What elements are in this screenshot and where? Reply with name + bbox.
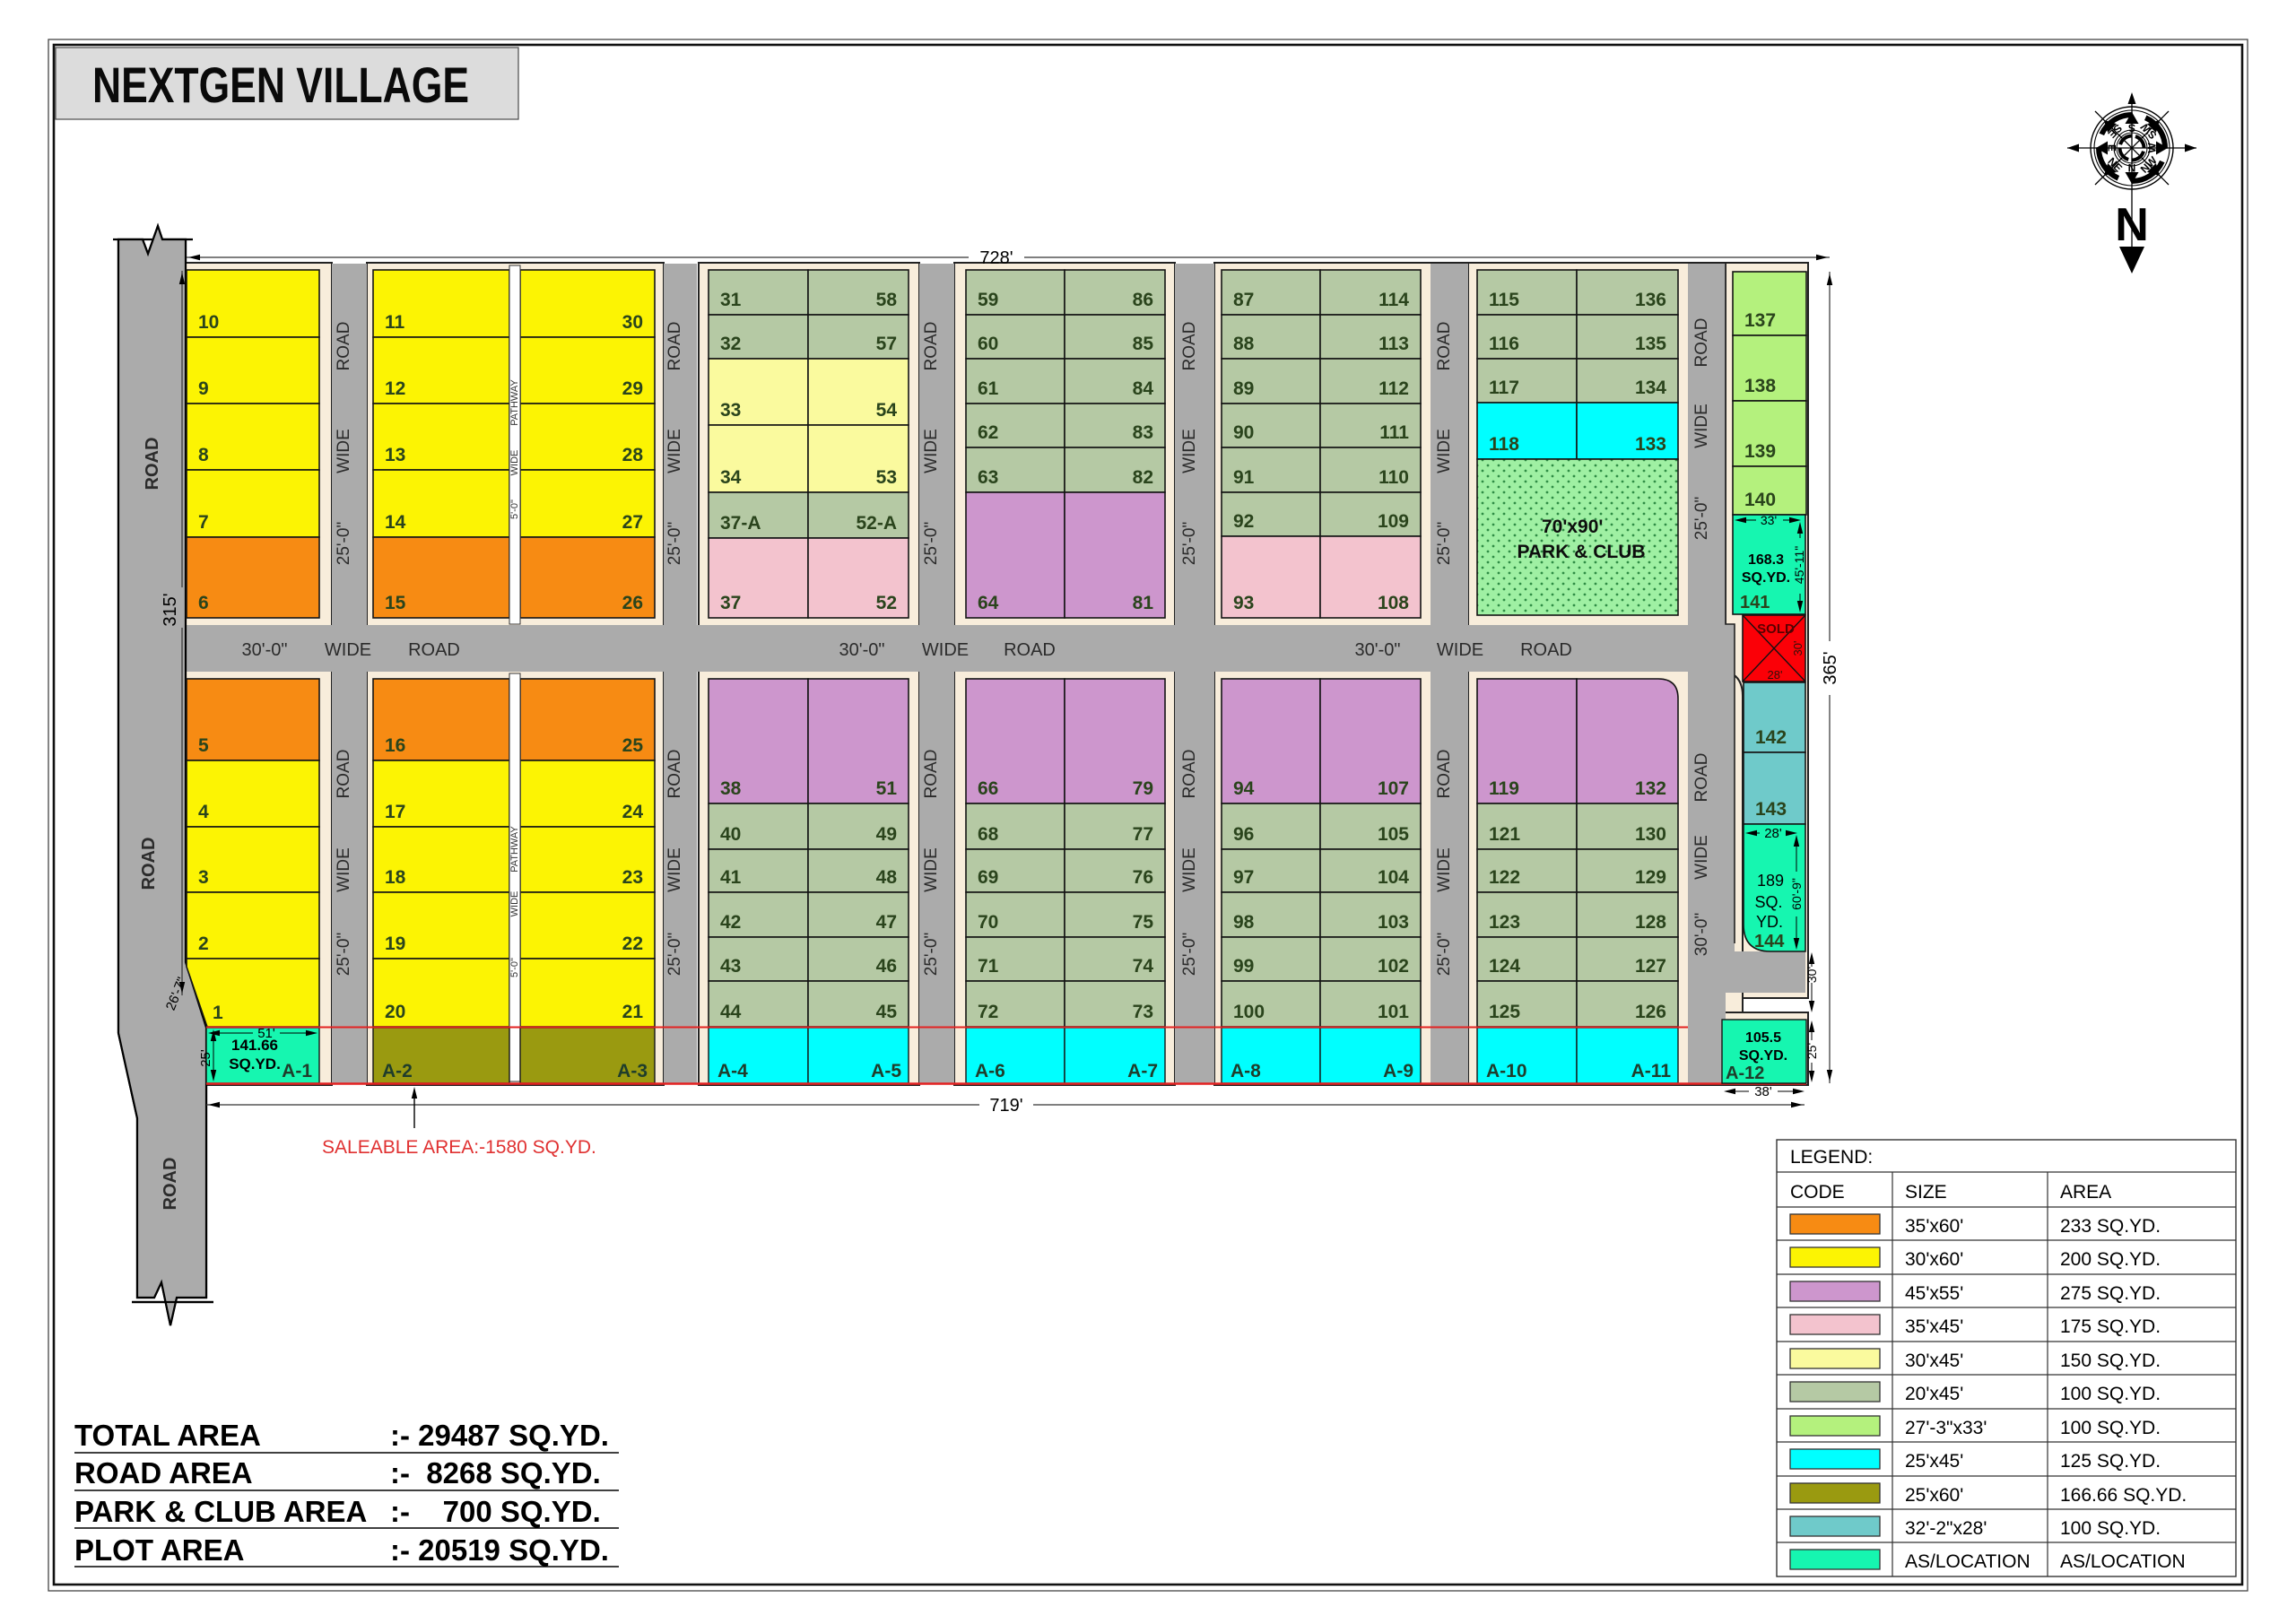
svg-text:ROAD: ROAD <box>1435 322 1454 371</box>
svg-text:SIZE: SIZE <box>1905 1182 1947 1203</box>
svg-text:33': 33' <box>1761 513 1777 527</box>
svg-text:137: 137 <box>1744 310 1776 331</box>
svg-text:17: 17 <box>385 802 405 822</box>
svg-text:NEXTGEN VILLAGE: NEXTGEN VILLAGE <box>92 56 469 113</box>
svg-text:25'-0": 25'-0" <box>1435 933 1454 976</box>
svg-text:25'x60': 25'x60' <box>1905 1485 1963 1506</box>
svg-text:365': 365' <box>1821 651 1840 684</box>
svg-text:122: 122 <box>1489 867 1520 888</box>
svg-text:A-12: A-12 <box>1726 1064 1764 1083</box>
svg-text:W: W <box>2146 143 2159 153</box>
svg-text:44: 44 <box>720 1002 742 1022</box>
svg-text:102: 102 <box>1378 956 1409 977</box>
svg-text:ROAD: ROAD <box>1692 318 1711 368</box>
svg-text:111: 111 <box>1379 422 1409 443</box>
svg-text:119: 119 <box>1489 778 1519 799</box>
svg-text:118: 118 <box>1489 434 1519 455</box>
svg-text:SALEABLE AREA:-1580 SQ.YD.: SALEABLE AREA:-1580 SQ.YD. <box>322 1137 596 1158</box>
svg-text:25'-0": 25'-0" <box>665 522 684 565</box>
svg-text:100 SQ.YD.: 100 SQ.YD. <box>2060 1384 2161 1404</box>
svg-text:A-10: A-10 <box>1486 1061 1527 1081</box>
svg-text:138: 138 <box>1744 376 1776 396</box>
svg-text:144: 144 <box>1754 932 1785 951</box>
svg-text:166.66 SQ.YD.: 166.66 SQ.YD. <box>2060 1485 2187 1506</box>
svg-text:A-8: A-8 <box>1231 1061 1261 1081</box>
svg-text:27'-3"x33': 27'-3"x33' <box>1905 1418 1987 1438</box>
svg-text:51': 51' <box>257 1026 275 1041</box>
svg-text:115: 115 <box>1489 290 1519 310</box>
svg-text:110: 110 <box>1378 467 1409 488</box>
svg-text:2: 2 <box>198 934 209 954</box>
svg-text:14: 14 <box>385 512 406 533</box>
svg-text:ROAD: ROAD <box>408 640 460 660</box>
svg-text:A-6: A-6 <box>975 1061 1005 1081</box>
svg-text:ROAD: ROAD <box>665 750 684 799</box>
svg-text:41: 41 <box>720 867 742 888</box>
svg-text:WIDE: WIDE <box>1692 835 1711 880</box>
svg-text:84: 84 <box>1133 378 1154 399</box>
svg-text:74: 74 <box>1133 956 1154 977</box>
svg-text:124: 124 <box>1489 956 1520 977</box>
svg-text:WIDE: WIDE <box>665 847 684 892</box>
svg-text:ROAD: ROAD <box>1520 640 1572 660</box>
svg-text:WIDE: WIDE <box>1692 404 1711 448</box>
svg-text:AS/LOCATION: AS/LOCATION <box>1905 1551 2031 1572</box>
svg-text:81: 81 <box>1133 593 1154 613</box>
svg-text:100 SQ.YD.: 100 SQ.YD. <box>2060 1518 2161 1539</box>
svg-text:25'-0": 25'-0" <box>335 933 353 976</box>
svg-text:27: 27 <box>622 512 643 533</box>
svg-text:76: 76 <box>1133 867 1153 888</box>
svg-text:35'x45': 35'x45' <box>1905 1316 1963 1337</box>
svg-text:ROAD: ROAD <box>1180 322 1199 371</box>
svg-text:WIDE: WIDE <box>922 847 941 892</box>
svg-text:82: 82 <box>1133 467 1153 488</box>
svg-text:25'-0": 25'-0" <box>1180 522 1199 565</box>
svg-text:25': 25' <box>198 1049 213 1067</box>
svg-text:121: 121 <box>1489 824 1520 845</box>
svg-text:WIDE: WIDE <box>1180 847 1199 892</box>
svg-text:25'-0": 25'-0" <box>1180 933 1199 976</box>
svg-text:A-3: A-3 <box>617 1061 648 1081</box>
svg-text:16: 16 <box>385 735 405 756</box>
svg-text:ROAD: ROAD <box>335 750 353 799</box>
svg-text:WIDE: WIDE <box>922 429 941 473</box>
svg-text:PLOT AREA: PLOT AREA <box>74 1533 244 1567</box>
svg-text:85: 85 <box>1133 334 1154 354</box>
svg-text:46: 46 <box>876 956 897 977</box>
svg-text:SQ.YD.: SQ.YD. <box>1742 570 1790 586</box>
svg-text:90: 90 <box>1233 422 1254 443</box>
svg-text:200 SQ.YD.: 200 SQ.YD. <box>2060 1249 2161 1270</box>
svg-text:25'x45': 25'x45' <box>1905 1451 1963 1472</box>
svg-text:WIDE: WIDE <box>335 429 353 473</box>
svg-text:WIDE: WIDE <box>325 640 371 660</box>
svg-text:275 SQ.YD.: 275 SQ.YD. <box>2060 1283 2161 1304</box>
svg-text:N: N <box>2128 162 2136 175</box>
svg-text:30: 30 <box>622 312 643 333</box>
svg-text:112: 112 <box>1378 378 1409 399</box>
svg-text:SQ.YD.: SQ.YD. <box>1739 1048 1787 1064</box>
svg-text:N: N <box>2115 199 2149 251</box>
svg-text:25'-0": 25'-0" <box>665 933 684 976</box>
svg-text:CODE: CODE <box>1790 1182 1845 1203</box>
svg-text:66: 66 <box>978 778 998 799</box>
svg-text:72: 72 <box>978 1002 998 1022</box>
svg-text:28': 28' <box>1764 826 1782 841</box>
svg-text:38: 38 <box>720 778 742 799</box>
svg-text:128: 128 <box>1635 912 1666 933</box>
svg-text:S: S <box>2128 122 2135 135</box>
svg-text:37-A: 37-A <box>720 513 761 534</box>
svg-text:30': 30' <box>1791 641 1805 656</box>
svg-text:30': 30' <box>1805 967 1819 983</box>
svg-text:64: 64 <box>978 593 999 613</box>
svg-text:10: 10 <box>198 312 219 333</box>
svg-text:LEGEND:: LEGEND: <box>1790 1147 1873 1168</box>
svg-text:60'-9": 60'-9" <box>1789 878 1804 910</box>
svg-text:WIDE: WIDE <box>1437 640 1483 660</box>
svg-text:A-4: A-4 <box>717 1061 748 1081</box>
svg-text:25'-0": 25'-0" <box>922 933 941 976</box>
svg-text:233 SQ.YD.: 233 SQ.YD. <box>2060 1216 2161 1237</box>
svg-text:13: 13 <box>385 445 405 465</box>
svg-text:99: 99 <box>1233 956 1254 977</box>
svg-text:8: 8 <box>198 445 209 465</box>
svg-text:45'-11": 45'-11" <box>1792 546 1806 584</box>
svg-text:30'-0": 30'-0" <box>1692 913 1711 956</box>
svg-text:142: 142 <box>1755 727 1787 748</box>
svg-text:189: 189 <box>1757 872 1784 890</box>
svg-text:A-9: A-9 <box>1383 1061 1413 1081</box>
svg-text:1: 1 <box>213 1003 223 1023</box>
svg-text:86: 86 <box>1133 290 1153 310</box>
svg-text:94: 94 <box>1233 778 1255 799</box>
svg-text:WIDE: WIDE <box>1180 429 1199 473</box>
svg-text:ROAD: ROAD <box>1004 640 1056 660</box>
svg-text:ROAD: ROAD <box>665 322 684 371</box>
svg-text:25'-0": 25'-0" <box>1692 497 1711 540</box>
svg-text:103: 103 <box>1378 912 1409 933</box>
svg-text:4: 4 <box>198 802 209 822</box>
svg-text:32'-2"x28': 32'-2"x28' <box>1905 1518 1987 1539</box>
svg-text:59: 59 <box>978 290 998 310</box>
svg-text:30'-0": 30'-0" <box>242 640 288 660</box>
svg-text:30'x45': 30'x45' <box>1905 1350 1963 1371</box>
svg-text:125: 125 <box>1489 1002 1520 1022</box>
svg-text:315': 315' <box>161 593 180 626</box>
svg-text:109: 109 <box>1378 511 1409 532</box>
svg-text:WIDE: WIDE <box>922 640 969 660</box>
svg-text:6: 6 <box>198 593 209 613</box>
svg-text:75: 75 <box>1133 912 1154 933</box>
svg-text:AREA: AREA <box>2060 1182 2111 1203</box>
svg-text:SQ.: SQ. <box>1754 893 1782 911</box>
svg-text:28: 28 <box>622 445 644 465</box>
svg-text:ROAD: ROAD <box>922 750 941 799</box>
svg-text:ROAD: ROAD <box>161 1158 180 1211</box>
svg-text:37: 37 <box>720 593 741 613</box>
svg-text:728': 728' <box>979 248 1013 268</box>
svg-text:A-11: A-11 <box>1631 1061 1672 1081</box>
svg-text:A-5: A-5 <box>871 1061 901 1081</box>
svg-text:132: 132 <box>1635 778 1666 799</box>
svg-text:175 SQ.YD.: 175 SQ.YD. <box>2060 1316 2161 1337</box>
svg-text:5'-0": 5'-0" <box>509 958 520 977</box>
svg-text:93: 93 <box>1233 593 1254 613</box>
svg-text::- 700 SQ.YD.: :- 700 SQ.YD. <box>390 1495 601 1528</box>
svg-text:70'x90': 70'x90' <box>1542 517 1603 537</box>
svg-text:PARK & CLUB: PARK & CLUB <box>1517 542 1645 562</box>
svg-text:32: 32 <box>720 334 741 354</box>
svg-text:23: 23 <box>622 867 643 888</box>
svg-text:134: 134 <box>1635 378 1666 398</box>
svg-text:25: 25 <box>622 735 644 756</box>
svg-text:ROAD: ROAD <box>139 838 159 890</box>
svg-text:30'-0": 30'-0" <box>1355 640 1401 660</box>
svg-text:130: 130 <box>1635 824 1666 845</box>
svg-text:92: 92 <box>1233 511 1254 532</box>
svg-text:ROAD: ROAD <box>1435 750 1454 799</box>
svg-text:TOTAL AREA: TOTAL AREA <box>74 1419 261 1452</box>
svg-text:47: 47 <box>876 912 897 933</box>
svg-text:73: 73 <box>1133 1002 1153 1022</box>
svg-text:38': 38' <box>1754 1084 1772 1099</box>
svg-text:WIDE: WIDE <box>335 847 353 892</box>
svg-text:PATHWAY: PATHWAY <box>509 826 520 873</box>
svg-text:108: 108 <box>1378 593 1409 613</box>
svg-text:29: 29 <box>622 378 643 399</box>
svg-text:ROAD: ROAD <box>335 322 353 371</box>
svg-text:34: 34 <box>720 467 742 488</box>
svg-text:WIDE: WIDE <box>509 891 520 917</box>
svg-text:ROAD: ROAD <box>1180 750 1199 799</box>
svg-text:100: 100 <box>1233 1002 1265 1022</box>
svg-text:WIDE: WIDE <box>509 450 520 476</box>
svg-text:101: 101 <box>1378 1002 1409 1022</box>
svg-text:126: 126 <box>1635 1002 1666 1022</box>
svg-text:54: 54 <box>876 400 898 421</box>
svg-text:20'x45': 20'x45' <box>1905 1384 1963 1404</box>
svg-text:117: 117 <box>1489 378 1519 398</box>
svg-text:28': 28' <box>1768 668 1783 682</box>
svg-text:51: 51 <box>876 778 898 799</box>
svg-text:96: 96 <box>1233 824 1254 845</box>
svg-text:52-A: 52-A <box>856 513 897 534</box>
svg-text:91: 91 <box>1233 467 1255 488</box>
svg-text:A-7: A-7 <box>1127 1061 1158 1081</box>
svg-text:PATHWAY: PATHWAY <box>509 379 520 426</box>
svg-text:9: 9 <box>198 378 209 399</box>
svg-text:62: 62 <box>978 422 998 443</box>
svg-text:135: 135 <box>1635 334 1666 354</box>
svg-text:98: 98 <box>1233 912 1255 933</box>
svg-text:A-1: A-1 <box>282 1061 312 1081</box>
svg-text::- 29487 SQ.YD.: :- 29487 SQ.YD. <box>390 1419 609 1452</box>
svg-text:WIDE: WIDE <box>665 429 684 473</box>
svg-text:104: 104 <box>1378 867 1409 888</box>
svg-text:12: 12 <box>385 378 405 399</box>
svg-text:25'-0": 25'-0" <box>335 522 353 565</box>
svg-text:20: 20 <box>385 1002 405 1022</box>
svg-text:150 SQ.YD.: 150 SQ.YD. <box>2060 1350 2161 1371</box>
svg-text:143: 143 <box>1755 799 1787 820</box>
svg-text:60: 60 <box>978 334 998 354</box>
svg-text:7: 7 <box>198 512 209 533</box>
svg-text:SOLD: SOLD <box>1757 621 1795 637</box>
svg-text:42: 42 <box>720 912 741 933</box>
svg-text:58: 58 <box>876 290 898 310</box>
svg-text:24: 24 <box>622 802 644 822</box>
svg-text:136: 136 <box>1635 290 1666 310</box>
svg-text:719': 719' <box>989 1096 1022 1116</box>
svg-text:11: 11 <box>385 312 405 333</box>
svg-text:87: 87 <box>1233 290 1254 310</box>
svg-text:40: 40 <box>720 824 741 845</box>
svg-text:125 SQ.YD.: 125 SQ.YD. <box>2060 1451 2161 1472</box>
svg-text:105: 105 <box>1378 824 1409 845</box>
svg-text:105.5: 105.5 <box>1745 1030 1781 1046</box>
svg-text:79: 79 <box>1133 778 1153 799</box>
svg-text:68: 68 <box>978 824 999 845</box>
svg-text:88: 88 <box>1233 334 1255 354</box>
svg-text:3: 3 <box>198 867 209 888</box>
svg-text:129: 129 <box>1635 867 1666 888</box>
svg-text:140: 140 <box>1744 490 1776 510</box>
svg-text:5'-0": 5'-0" <box>509 499 520 519</box>
svg-text:E: E <box>2106 144 2118 152</box>
svg-text:33: 33 <box>720 400 741 421</box>
svg-text:69: 69 <box>978 867 998 888</box>
svg-text:26: 26 <box>622 593 643 613</box>
svg-text:5: 5 <box>198 735 209 756</box>
svg-text::- 20519 SQ.YD.: :- 20519 SQ.YD. <box>390 1533 609 1567</box>
svg-text:YD.: YD. <box>1756 913 1783 931</box>
svg-text:83: 83 <box>1133 422 1153 443</box>
svg-text:WIDE: WIDE <box>1435 847 1454 892</box>
svg-text:15: 15 <box>385 593 406 613</box>
svg-text:45'x55': 45'x55' <box>1905 1283 1963 1304</box>
svg-text:116: 116 <box>1489 334 1519 354</box>
svg-text:A-2: A-2 <box>382 1061 413 1081</box>
svg-text:63: 63 <box>978 467 998 488</box>
svg-text:97: 97 <box>1233 867 1254 888</box>
svg-text:77: 77 <box>1133 824 1153 845</box>
svg-text:ROAD AREA: ROAD AREA <box>74 1456 253 1489</box>
svg-text:89: 89 <box>1233 378 1254 399</box>
svg-text:43: 43 <box>720 956 741 977</box>
svg-text:AS/LOCATION: AS/LOCATION <box>2060 1551 2186 1572</box>
svg-text:SQ.YD.: SQ.YD. <box>229 1055 281 1073</box>
svg-text:61: 61 <box>978 378 999 399</box>
svg-text::- 8268 SQ.YD.: :- 8268 SQ.YD. <box>390 1456 601 1489</box>
svg-text:114: 114 <box>1378 290 1409 310</box>
svg-text:30'-0": 30'-0" <box>839 640 885 660</box>
svg-text:57: 57 <box>876 334 897 354</box>
svg-text:25': 25' <box>1805 1043 1819 1059</box>
svg-text:53: 53 <box>876 467 897 488</box>
svg-text:31: 31 <box>720 290 742 310</box>
svg-text:22: 22 <box>622 934 643 954</box>
svg-text:71: 71 <box>978 956 999 977</box>
svg-text:141: 141 <box>1740 593 1770 612</box>
svg-text:168.3: 168.3 <box>1748 552 1784 568</box>
svg-text:133: 133 <box>1635 434 1666 455</box>
svg-text:18: 18 <box>385 867 406 888</box>
svg-text:100 SQ.YD.: 100 SQ.YD. <box>2060 1418 2161 1438</box>
svg-text:25'-0": 25'-0" <box>922 522 941 565</box>
svg-text:30'x60': 30'x60' <box>1905 1249 1963 1270</box>
svg-text:123: 123 <box>1489 912 1520 933</box>
svg-text:49: 49 <box>876 824 897 845</box>
svg-text:ROAD: ROAD <box>143 438 162 491</box>
svg-text:139: 139 <box>1744 441 1776 462</box>
svg-text:21: 21 <box>622 1002 644 1022</box>
svg-text:ROAD: ROAD <box>1692 753 1711 803</box>
svg-text:35'x60': 35'x60' <box>1905 1216 1963 1237</box>
svg-text:25'-0": 25'-0" <box>1435 522 1454 565</box>
svg-text:45: 45 <box>876 1002 898 1022</box>
svg-text:70: 70 <box>978 912 998 933</box>
svg-text:107: 107 <box>1378 778 1409 799</box>
svg-text:PARK & CLUB AREA: PARK & CLUB AREA <box>74 1495 367 1528</box>
svg-text:ROAD: ROAD <box>922 322 941 371</box>
svg-text:127: 127 <box>1635 956 1666 977</box>
svg-text:48: 48 <box>876 867 898 888</box>
svg-text:WIDE: WIDE <box>1435 429 1454 473</box>
svg-text:113: 113 <box>1378 334 1409 354</box>
svg-text:19: 19 <box>385 934 405 954</box>
svg-text:52: 52 <box>876 593 897 613</box>
